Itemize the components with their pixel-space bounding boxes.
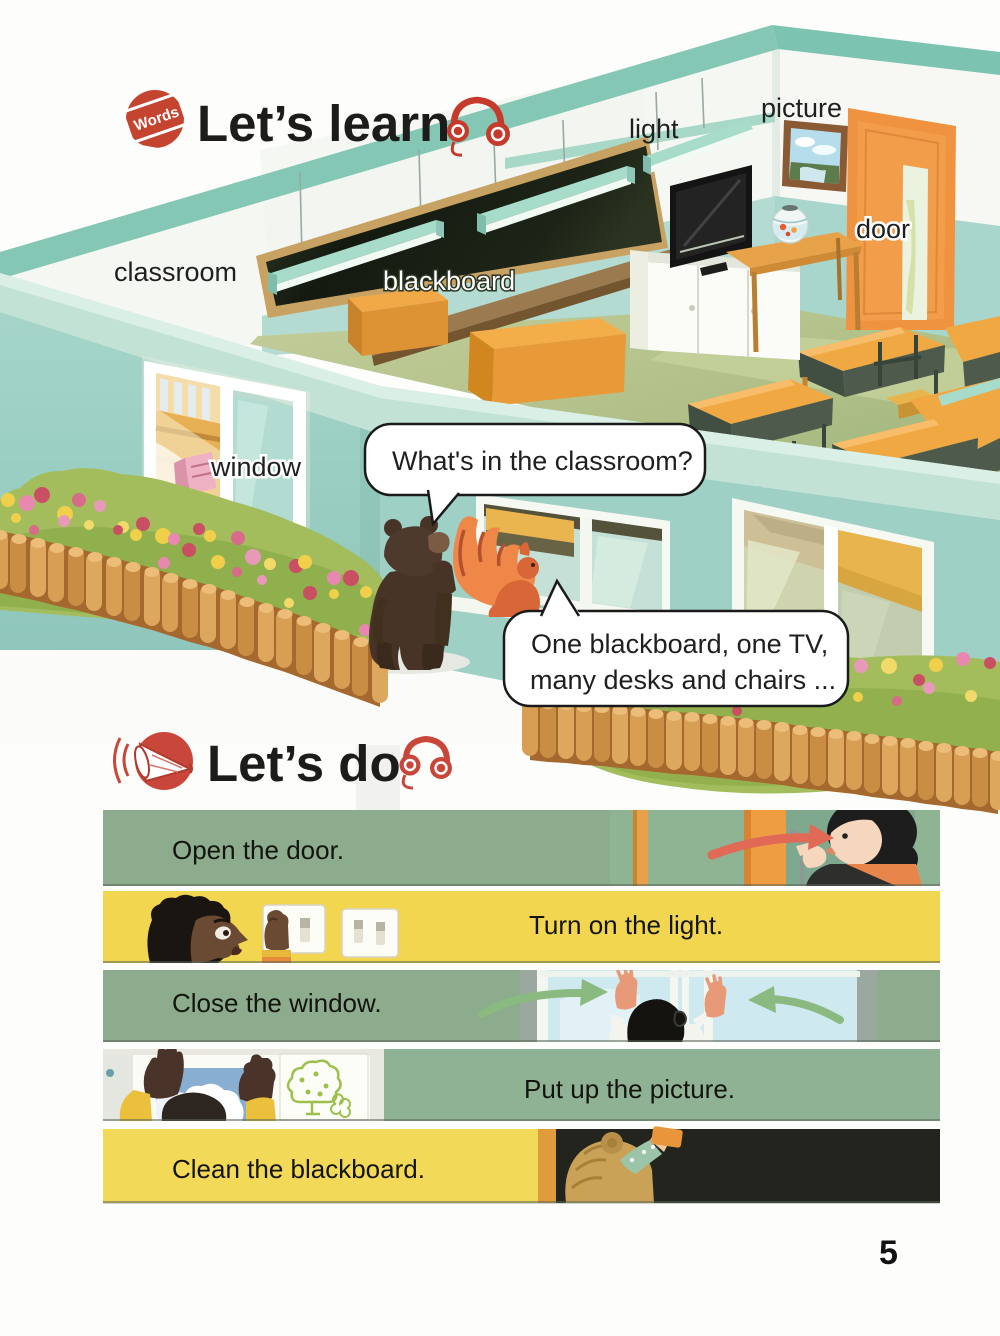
svg-text:Turn on the light.: Turn on the light. xyxy=(529,910,723,940)
svg-text:light: light xyxy=(629,114,679,144)
svg-text:What's in the classroom?: What's in the classroom? xyxy=(392,446,693,476)
svg-text:Put up the picture.: Put up the picture. xyxy=(524,1074,735,1104)
svg-text:Open the door.: Open the door. xyxy=(172,835,344,865)
svg-text:Close the window.: Close the window. xyxy=(172,988,382,1018)
svg-text:many desks and chairs ...: many desks and chairs ... xyxy=(530,665,836,695)
svg-text:blackboard: blackboard xyxy=(383,266,515,296)
svg-text:Let’s do: Let’s do xyxy=(207,735,401,792)
svg-text:Clean the blackboard.: Clean the blackboard. xyxy=(172,1154,425,1184)
svg-text:One blackboard, one TV,: One blackboard, one TV, xyxy=(531,629,828,659)
svg-text:door: door xyxy=(856,214,910,244)
svg-text:window: window xyxy=(210,452,302,482)
svg-text:Let’s learn: Let’s learn xyxy=(197,95,450,152)
svg-text:5: 5 xyxy=(879,1234,898,1272)
svg-text:picture: picture xyxy=(761,93,842,123)
svg-text:classroom: classroom xyxy=(114,257,237,287)
